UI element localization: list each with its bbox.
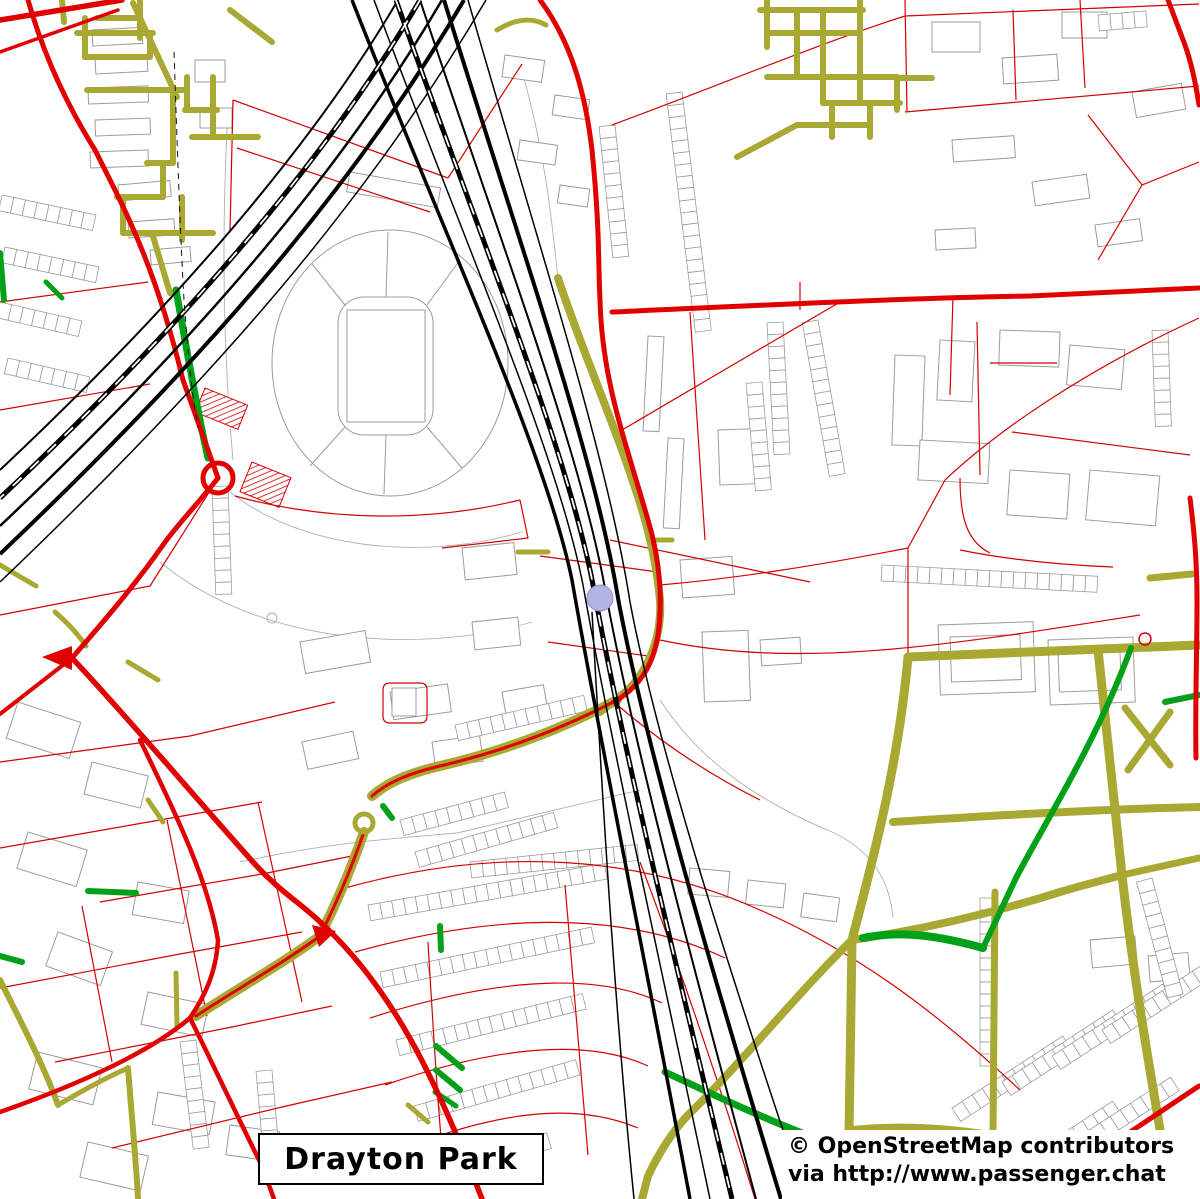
map-canvas[interactable]: Drayton Park © OpenStreetMap contributor… [0,0,1200,1199]
station-label-box: Drayton Park [258,1133,544,1185]
map-attribution: © OpenStreetMap contributors via http://… [782,1130,1200,1199]
oneway-arrow-layer [42,646,336,947]
station-marker[interactable] [587,585,613,611]
station-label-text: Drayton Park [284,1142,518,1177]
attribution-line2: via http://www.passenger.chat [788,1161,1200,1189]
stadium [272,230,508,496]
map-image [0,0,1200,1199]
attribution-line1: © OpenStreetMap contributors [788,1133,1200,1161]
